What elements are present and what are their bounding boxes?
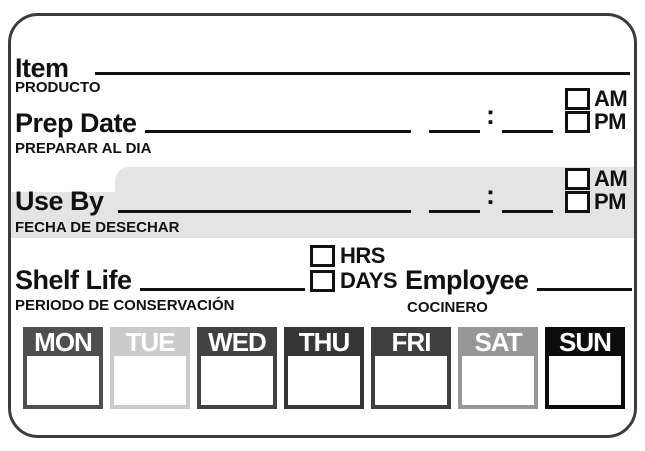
day-name-mon: MON <box>23 327 103 357</box>
day-box-wed[interactable]: WED <box>197 327 277 409</box>
day-box-tue[interactable]: TUE <box>110 327 190 409</box>
shelf-life-label: Shelf Life <box>15 265 132 296</box>
day-name-sun: SUN <box>545 327 625 357</box>
prep-date-label: Prep Date <box>15 108 137 139</box>
prep-date-sublabel: PREPARAR AL DIA <box>15 140 151 157</box>
day-name-thu: THU <box>284 327 364 357</box>
use-by-highlight-tab <box>115 167 634 193</box>
day-name-wed: WED <box>197 327 277 357</box>
employee-sublabel: COCINERO <box>407 299 488 316</box>
day-name-sat: SAT <box>458 327 538 357</box>
employee-label: Employee <box>405 265 529 296</box>
shelf-days-label: DAYS <box>340 268 397 294</box>
day-write-area-fri[interactable] <box>375 356 447 405</box>
prep-pm-checkbox[interactable] <box>565 111 590 133</box>
day-box-fri[interactable]: FRI <box>371 327 451 409</box>
shelf-hrs-checkbox[interactable] <box>310 245 335 267</box>
day-box-sun[interactable]: SUN <box>545 327 625 409</box>
use-by-sublabel: FECHA DE DESECHAR <box>15 219 179 236</box>
prep-minute-write-line[interactable] <box>502 130 553 133</box>
prep-am-checkbox[interactable] <box>565 88 590 110</box>
day-write-area-sat[interactable] <box>462 356 534 405</box>
use-by-hour-write-line[interactable] <box>429 210 480 213</box>
shelf-life-sublabel: PERIODO DE CONSERVACIÓN <box>15 297 234 314</box>
shelf-life-write-line[interactable] <box>140 288 305 291</box>
day-box-mon[interactable]: MON <box>23 327 103 409</box>
prep-date-write-line[interactable] <box>145 130 411 133</box>
item-write-line[interactable] <box>95 72 630 75</box>
day-write-area-tue[interactable] <box>114 356 186 405</box>
use-by-write-line[interactable] <box>118 210 411 213</box>
day-box-thu[interactable]: THU <box>284 327 364 409</box>
shelf-hrs-label: HRS <box>340 243 385 269</box>
prep-pm-label: PM <box>594 109 626 135</box>
employee-write-line[interactable] <box>537 288 632 291</box>
use-by-pm-checkbox[interactable] <box>565 191 590 213</box>
use-by-pm-label: PM <box>594 189 626 215</box>
day-name-tue: TUE <box>110 327 190 357</box>
day-write-area-thu[interactable] <box>288 356 360 405</box>
rotation-label: Item PRODUCTO Prep Date : AM PM PREPARAR… <box>0 0 645 451</box>
shelf-days-checkbox[interactable] <box>310 270 335 292</box>
use-by-time-colon: : <box>486 180 495 211</box>
item-sublabel: PRODUCTO <box>15 79 101 96</box>
day-name-fri: FRI <box>371 327 451 357</box>
prep-time-colon: : <box>486 100 495 131</box>
day-box-sat[interactable]: SAT <box>458 327 538 409</box>
use-by-minute-write-line[interactable] <box>502 210 553 213</box>
prep-hour-write-line[interactable] <box>429 130 480 133</box>
day-write-area-mon[interactable] <box>27 356 99 405</box>
use-by-label: Use By <box>15 186 104 217</box>
day-write-area-wed[interactable] <box>201 356 273 405</box>
day-write-area-sun[interactable] <box>549 356 621 405</box>
use-by-am-checkbox[interactable] <box>565 168 590 190</box>
